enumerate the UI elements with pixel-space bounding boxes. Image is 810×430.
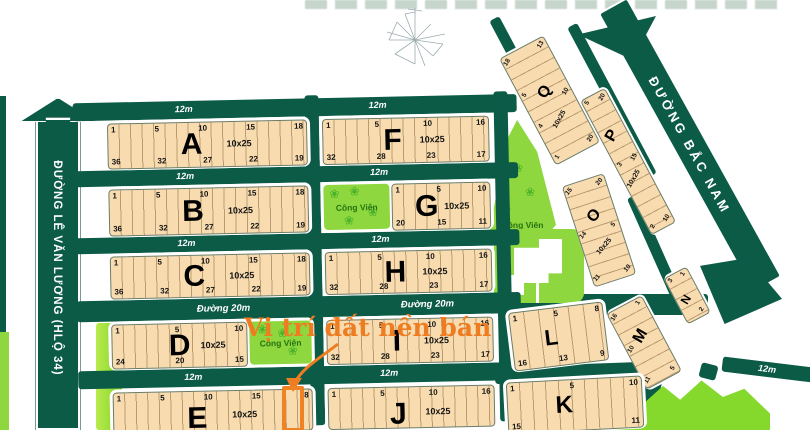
plot-number: 15 bbox=[437, 219, 446, 227]
plot-size: 10x25 bbox=[200, 340, 225, 350]
plot-number: 1 bbox=[395, 186, 400, 194]
block-letter: M bbox=[631, 327, 652, 347]
plot-number: 10 bbox=[423, 120, 432, 128]
plot-numbers-bottom: 3632272219 bbox=[112, 155, 304, 167]
plot-number: 28 bbox=[379, 283, 388, 291]
plot-number: 18 bbox=[295, 188, 304, 196]
plot-number: 28 bbox=[377, 153, 386, 161]
plot-number: 5 bbox=[553, 310, 558, 318]
block-letter: L bbox=[543, 326, 559, 349]
block-B: 15101518 B 10x25 3632272219 bbox=[105, 182, 312, 237]
plot-number: 23 bbox=[431, 352, 440, 360]
plot-number: 32 bbox=[157, 157, 166, 165]
plot-size: 10x25 bbox=[425, 407, 450, 417]
plot-size: 10x25 bbox=[595, 236, 613, 255]
plot-number: 5 bbox=[522, 92, 529, 98]
plot-number: 1 bbox=[635, 300, 642, 306]
road-label-12m: 12m bbox=[380, 369, 398, 378]
plot-number: 1 bbox=[512, 315, 517, 323]
plot-numbers-top: 1510 bbox=[510, 379, 638, 394]
block-F: 151016 F 10x25 32282317 bbox=[319, 113, 493, 167]
block-G: ❀ ❀ ❀ ❀ Công Viên 1510 G 10x25 201511 bbox=[320, 179, 494, 234]
plot-number: 32 bbox=[327, 154, 336, 162]
plot-number: 28 bbox=[381, 353, 390, 361]
flower-icon: ❀ bbox=[344, 214, 354, 226]
block-letter: G bbox=[415, 191, 439, 221]
plot-number: 1 bbox=[111, 126, 116, 134]
plot-number: 10 bbox=[477, 185, 486, 193]
plot-number: 11 bbox=[644, 376, 653, 385]
plot-number: 5 bbox=[156, 192, 161, 200]
plot-number: 10 bbox=[234, 325, 243, 333]
plot-number: 1 bbox=[555, 154, 562, 160]
plot-number: 16 bbox=[476, 119, 485, 127]
plot-numbers-top: 151016 bbox=[326, 119, 485, 130]
plot-number: 4 bbox=[538, 123, 545, 129]
plot-numbers-top: 158 bbox=[512, 305, 599, 324]
plot-number: 18 bbox=[504, 58, 513, 68]
plot-number: 5 bbox=[585, 100, 592, 106]
plot-number: 36 bbox=[112, 158, 121, 166]
plot-number: 32 bbox=[160, 287, 169, 295]
plot-number: 15 bbox=[235, 356, 244, 364]
annotation-arrow-icon bbox=[276, 342, 346, 392]
plot-number: 10 bbox=[204, 393, 213, 401]
plot-number: 18 bbox=[297, 255, 306, 263]
plot-number: 1 bbox=[332, 391, 337, 399]
plot-size: 10x25 bbox=[232, 410, 257, 420]
road-label-12m: 12m bbox=[370, 168, 388, 177]
plot-number: 17 bbox=[481, 351, 490, 359]
plot-number: 24 bbox=[116, 358, 125, 366]
plot-number: 5 bbox=[374, 121, 379, 129]
road-label-12m: 12m bbox=[175, 105, 193, 114]
plot-number: 14 bbox=[579, 230, 589, 240]
plot-number: 20 bbox=[598, 93, 607, 103]
compass-rose-icon bbox=[375, 6, 455, 70]
plot-number: 10 bbox=[562, 87, 571, 97]
plot-number: 36 bbox=[113, 225, 122, 233]
block-letter: A bbox=[180, 130, 202, 160]
plot-numbers-bottom: 3632272219 bbox=[114, 284, 306, 296]
plot-number: 2 bbox=[651, 224, 658, 230]
plot-number: 22 bbox=[250, 222, 259, 230]
road-label-20m: Đường 20m bbox=[401, 299, 454, 310]
plot-number: 11 bbox=[593, 274, 602, 283]
plot-number: 1 bbox=[680, 271, 687, 277]
plot-number: 18 bbox=[294, 123, 303, 131]
plot-number: 20 bbox=[595, 177, 605, 187]
plot-number: 15 bbox=[630, 153, 639, 163]
plot-number: 16 bbox=[611, 313, 620, 323]
plot-number: 19 bbox=[297, 284, 306, 292]
plot-size: 10x25 bbox=[422, 267, 447, 277]
plot-number: 8 bbox=[594, 305, 599, 313]
block-letter: E bbox=[187, 404, 208, 430]
plot-numbers-top: 15101518 bbox=[117, 391, 309, 403]
plot-number: 27 bbox=[206, 286, 215, 294]
plot-number: 9 bbox=[600, 350, 605, 358]
plot-numbers-bottom: 242015 bbox=[116, 356, 244, 367]
block-K: 1510 K 1511 bbox=[503, 372, 648, 430]
plot-number: 5 bbox=[569, 382, 574, 390]
plot-size: 10x25 bbox=[444, 201, 469, 211]
plot-number: 16 bbox=[479, 252, 488, 260]
block-letter: O bbox=[584, 207, 604, 227]
flower-icon: ❀ bbox=[329, 188, 339, 200]
plot-number: 3 bbox=[668, 278, 675, 284]
plot-number: 5 bbox=[160, 394, 165, 402]
plot-numbers-bottom: 32282317 bbox=[331, 351, 490, 362]
plot-number: 19 bbox=[295, 155, 304, 163]
plot-numbers-top: 1510 bbox=[395, 185, 486, 195]
block-A: 15101518 A 10x25 3632272219 bbox=[104, 116, 311, 170]
plot-number: 27 bbox=[205, 223, 214, 231]
block-J: 151016 J 10x25 bbox=[324, 381, 498, 430]
block-letter: B bbox=[182, 196, 204, 226]
plot-number: 1 bbox=[115, 327, 120, 335]
plot-number: 10 bbox=[426, 253, 435, 261]
annotation-for-sale: Vị trí đất nền bán bbox=[244, 314, 491, 342]
highlighted-plot-outline bbox=[282, 386, 304, 430]
plot-numbers-bottom: 3632272219 bbox=[113, 221, 305, 233]
plot-number: 15 bbox=[249, 256, 258, 264]
road-label-20m: Đường 20m bbox=[197, 304, 250, 315]
plot-numbers-top: 15101518 bbox=[114, 255, 306, 267]
plot-number: 1 bbox=[329, 255, 334, 263]
park-label: Công Viên bbox=[324, 203, 390, 213]
plot-number: 1 bbox=[114, 259, 119, 267]
plot-number: 32 bbox=[159, 224, 168, 232]
plot-number: 1 bbox=[117, 395, 122, 403]
plot-number: 22 bbox=[252, 285, 261, 293]
plot-number: 27 bbox=[203, 156, 212, 164]
block-letter: K bbox=[555, 393, 574, 418]
plot-number: 10 bbox=[429, 389, 438, 397]
plot-numbers-top: 15101518 bbox=[112, 188, 304, 200]
plot-number: 3 bbox=[618, 162, 625, 168]
plot-number: 17 bbox=[479, 281, 488, 289]
plot-number: 5 bbox=[610, 222, 617, 229]
block-letter: Q bbox=[535, 83, 555, 102]
plot-number: 5 bbox=[157, 258, 162, 266]
plot-number: 16 bbox=[518, 359, 528, 368]
plot-number: 19 bbox=[296, 221, 305, 229]
plot-number: 13 bbox=[559, 354, 569, 363]
plot-number: 23 bbox=[429, 282, 438, 290]
block-L: 158 L 16139 bbox=[505, 298, 613, 373]
road-label-12m: 12m bbox=[369, 101, 387, 110]
block-letter: J bbox=[390, 400, 407, 430]
road-label-12m: 12m bbox=[371, 235, 389, 244]
plot-numbers-top: 151016 bbox=[332, 388, 491, 399]
plot-number: 2 bbox=[699, 307, 706, 313]
plot-number: 20 bbox=[175, 357, 184, 365]
plot-number: 15 bbox=[565, 187, 575, 197]
plot-number: 15 bbox=[512, 423, 521, 430]
plot-numbers-top: 151016 bbox=[329, 252, 488, 263]
plot-number: 1 bbox=[112, 192, 117, 200]
plot-size: 10x25 bbox=[229, 271, 254, 281]
plot-number: 36 bbox=[114, 288, 123, 296]
block-C: 15101518 C 10x25 3632272219 bbox=[107, 249, 314, 300]
plot-numbers-bottom: 1511 bbox=[512, 417, 640, 430]
road-label-12m: 12m bbox=[176, 172, 194, 181]
plot-number: 11 bbox=[479, 218, 488, 226]
plot-number: 1 bbox=[510, 385, 515, 393]
road-label-12m: 12m bbox=[184, 373, 202, 382]
plot-number: 10 bbox=[629, 379, 638, 387]
plot-size: 10x25 bbox=[552, 109, 568, 129]
plot-number: 15 bbox=[246, 124, 255, 132]
plot-number: 20 bbox=[396, 219, 405, 227]
plot-number: 5 bbox=[155, 126, 160, 134]
plot-size: 10x25 bbox=[420, 135, 445, 145]
plot-number: 10 bbox=[627, 344, 636, 354]
plot-number: 16 bbox=[482, 388, 491, 396]
plot-number: 13 bbox=[537, 40, 546, 50]
plot-number: 15 bbox=[247, 189, 256, 197]
plot-number: 5 bbox=[380, 390, 385, 398]
park-block-G: ❀ ❀ ❀ ❀ Công Viên bbox=[323, 184, 390, 230]
flower-icon: ❀ bbox=[349, 185, 359, 197]
block-H: 151016 H 10x25 32282317 bbox=[322, 246, 496, 297]
plot-numbers-bottom: 32282317 bbox=[327, 151, 486, 162]
plot-number: 23 bbox=[427, 152, 436, 160]
plot-number: 5 bbox=[670, 366, 677, 372]
plot-number: 32 bbox=[329, 284, 338, 292]
plot-number: 17 bbox=[477, 151, 486, 159]
subdivision-map: ĐƯỜNG LÊ VĂN LƯƠNG (HLỘ 34) ❀ ❀ ❀ Công V… bbox=[0, 0, 810, 430]
plot-number: 1 bbox=[326, 122, 331, 130]
block-letter: F bbox=[383, 125, 402, 155]
plot-number: 11 bbox=[631, 417, 640, 425]
plot-number: 10 bbox=[662, 213, 671, 223]
plot-number: 5 bbox=[377, 254, 382, 262]
plot-size: 10x25 bbox=[226, 139, 251, 149]
road-label-12m: 12m bbox=[177, 239, 195, 248]
plot-numbers-bottom: 201511 bbox=[396, 218, 487, 228]
plot-number: 10 bbox=[623, 264, 633, 274]
plot-numbers-top: 15101518 bbox=[111, 123, 303, 135]
plot-size: 10x25 bbox=[228, 206, 253, 216]
plot-numbers-bottom: 32282317 bbox=[329, 281, 488, 292]
plot-number: 15 bbox=[252, 392, 261, 400]
plot-number: 20 bbox=[586, 134, 595, 144]
plot-number: 22 bbox=[249, 155, 258, 163]
